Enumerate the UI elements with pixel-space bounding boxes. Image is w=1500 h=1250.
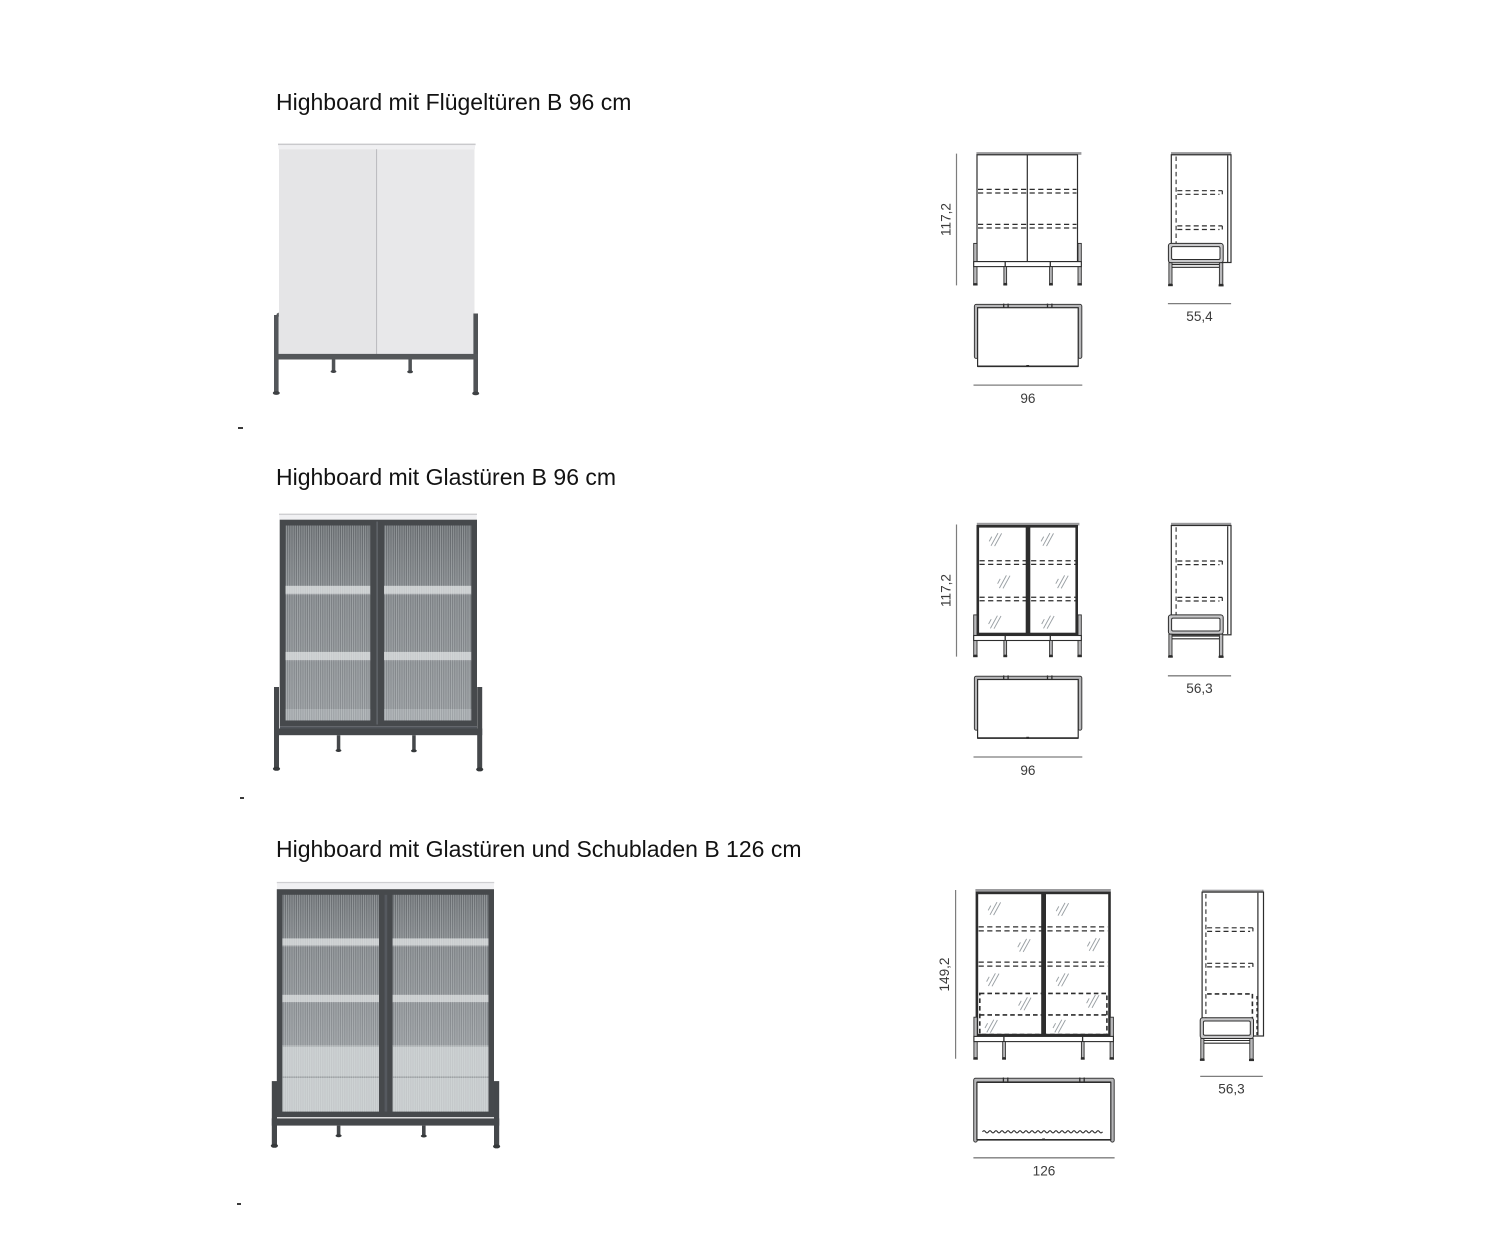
svg-text:126: 126	[1033, 1163, 1056, 1178]
svg-text:96: 96	[1020, 391, 1035, 406]
svg-text:56,3: 56,3	[1186, 681, 1212, 696]
svg-text:117,2: 117,2	[939, 203, 954, 236]
svg-text:117,2: 117,2	[939, 574, 954, 607]
svg-text:56,3: 56,3	[1218, 1082, 1244, 1097]
svg-text:55,4: 55,4	[1186, 309, 1213, 324]
svg-text:149,2: 149,2	[937, 957, 952, 991]
svg-text:96: 96	[1020, 763, 1035, 778]
